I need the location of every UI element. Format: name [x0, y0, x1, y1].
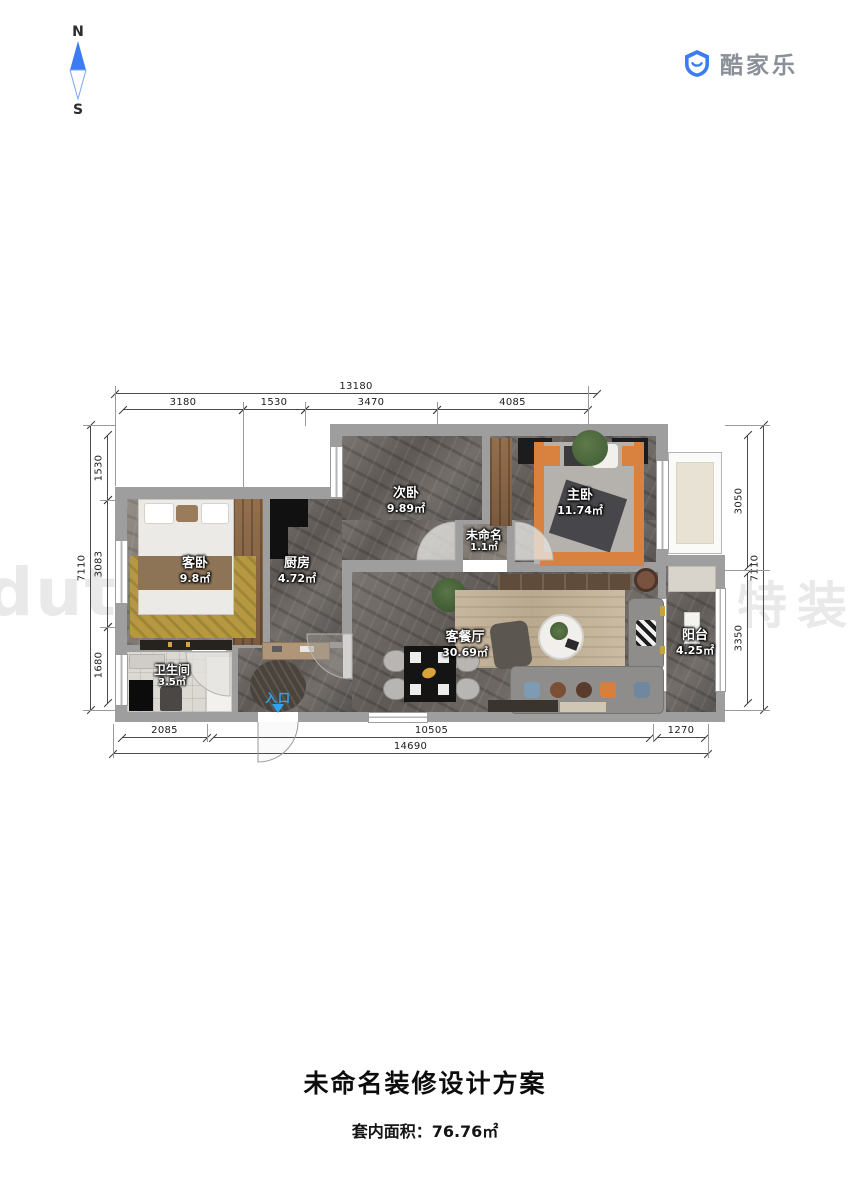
- page: { "compass": {"north": "N", "south": "S"…: [0, 0, 850, 1202]
- armchair: [489, 620, 533, 671]
- entrance-door-arc: [258, 722, 298, 762]
- room-floor-second-bedroom: [342, 520, 455, 560]
- entrance-door-opening: [258, 712, 298, 722]
- dresser-item: [168, 642, 172, 647]
- compass: N S: [60, 24, 96, 124]
- compass-south-label: S: [60, 102, 96, 118]
- table-plant: [550, 622, 568, 640]
- compass-north-label: N: [60, 24, 96, 40]
- plate: [438, 684, 449, 695]
- dining-chair: [456, 678, 480, 700]
- window: [715, 588, 726, 692]
- compass-needle-icon: [65, 41, 91, 101]
- room-label-unnamed: 未命名1.1㎡: [466, 528, 502, 555]
- plan-area-text: 套内面积：76.76㎡: [0, 1118, 850, 1142]
- window: [115, 540, 128, 604]
- washing-machine: [129, 680, 153, 711]
- pillow: [634, 682, 650, 698]
- pillow: [201, 503, 229, 524]
- room-label-bathroom: 卫生间3.5㎡: [154, 663, 190, 690]
- pillow: [144, 503, 174, 524]
- kujiale-logo-icon: [682, 48, 712, 78]
- console-item: [272, 646, 282, 652]
- bath-vanity: [206, 656, 232, 712]
- room-label-master-bedroom: 主卧11.74㎡: [557, 488, 603, 517]
- plate: [410, 684, 421, 695]
- shoe-bench: [488, 700, 558, 712]
- pillow: [576, 682, 592, 698]
- console-item: [300, 646, 314, 652]
- room-label-balcony: 阳台4.25㎡: [676, 628, 714, 657]
- pillow: [550, 682, 566, 698]
- kujiale-logo-text: 酷家乐: [720, 46, 798, 80]
- window: [368, 712, 428, 723]
- window: [656, 460, 669, 550]
- master-wardrobe: [490, 438, 512, 526]
- balcony-item: [660, 646, 665, 654]
- entrance-arrow-icon: [272, 704, 284, 713]
- pillow: [636, 620, 656, 646]
- floor-plan: 次卧9.89㎡ 主卧11.74㎡ 未命名1.1㎡ 客卧9.8㎡ 厨房4.72㎡ …: [0, 0, 850, 1202]
- window: [330, 446, 343, 498]
- room-label-second-bedroom: 次卧9.89㎡: [387, 486, 425, 515]
- room-label-kitchen: 厨房4.72㎡: [278, 556, 316, 585]
- tv-cabinet: [498, 574, 632, 590]
- planter-pot: [634, 568, 658, 592]
- door-mat: [560, 702, 606, 712]
- plan-title: 未命名装修设计方案: [0, 1064, 850, 1100]
- plate: [410, 652, 421, 663]
- kitchen-door-opening: [343, 634, 352, 678]
- bay-window-sill: [676, 462, 714, 544]
- room-label-guest-bedroom: 客卧9.8㎡: [180, 556, 211, 585]
- kujiale-logo: 酷家乐: [682, 46, 798, 80]
- kitchen-counter: [270, 499, 288, 559]
- balcony-cabinet: [668, 566, 716, 592]
- pillow: [524, 682, 540, 698]
- room-label-living-dining: 客餐厅30.69㎡: [442, 630, 488, 659]
- master-bed-footboard: [540, 552, 644, 566]
- unnamed-door-opening: [463, 560, 507, 572]
- plant: [572, 430, 608, 466]
- balcony-item: [660, 606, 665, 616]
- pillow: [600, 682, 616, 698]
- dresser-item: [186, 642, 190, 647]
- master-bed-rail: [634, 442, 644, 560]
- pillow: [622, 446, 634, 466]
- window: [115, 654, 128, 706]
- pillow: [176, 505, 198, 522]
- pillow: [538, 446, 560, 466]
